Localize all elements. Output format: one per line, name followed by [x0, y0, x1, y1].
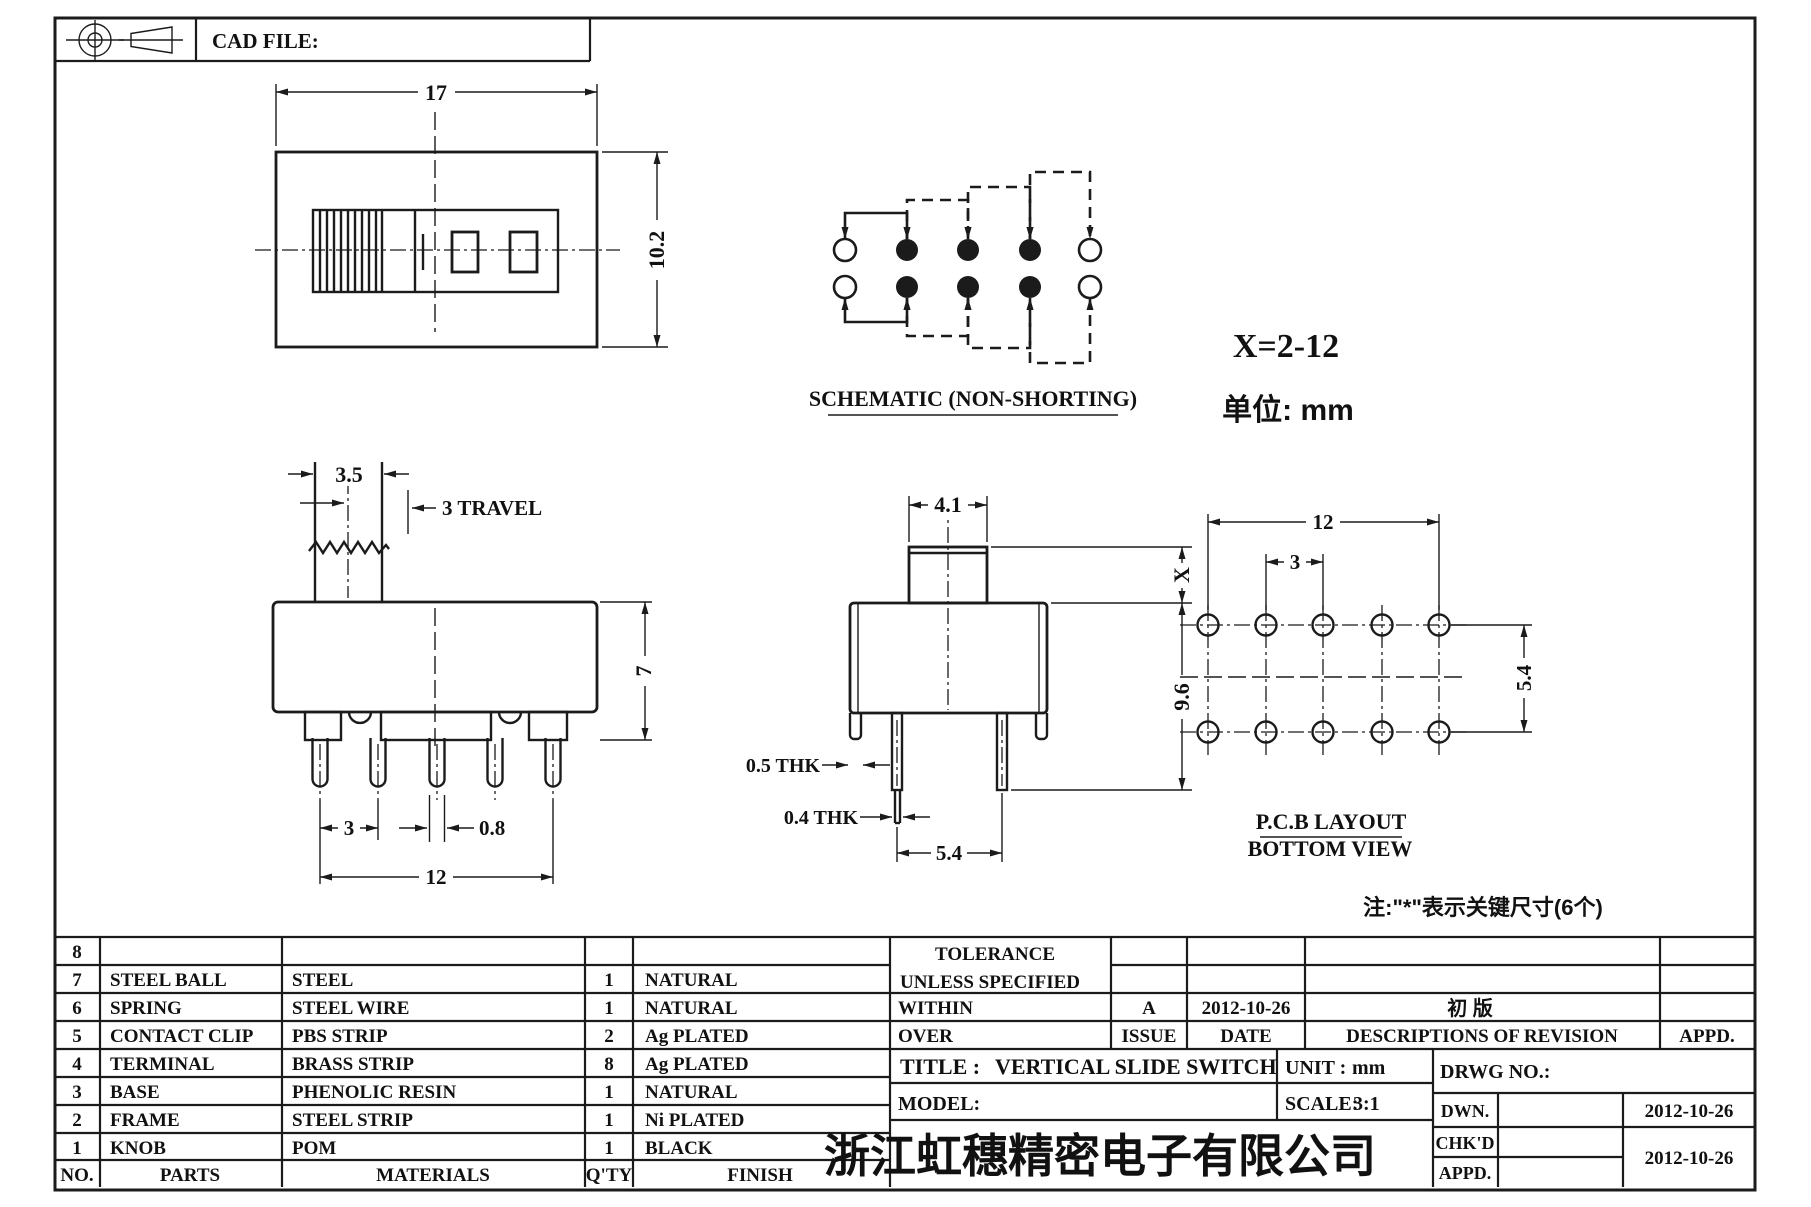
- part-name: STEEL BALL: [110, 970, 227, 991]
- part-qty: 1: [604, 998, 614, 1019]
- part-name: TERMINAL: [110, 1054, 215, 1075]
- part-finish: BLACK: [645, 1138, 713, 1159]
- part-material: BRASS STRIP: [292, 1054, 414, 1075]
- title-value: VERTICAL SLIDE SWITCH: [995, 1054, 1277, 1079]
- schematic-view: SCHEMATIC (NON-SHORTING) X=2-12 单位: mm: [809, 172, 1354, 427]
- part-finish: NATURAL: [645, 970, 738, 991]
- pcb-layout-view: 12 3 5.4 P.C.B LAYOUT BOTTOM VIEW: [1180, 510, 1536, 861]
- part-qty: 1: [604, 1110, 614, 1131]
- scale-value: 3:1: [1353, 1093, 1380, 1115]
- side-body-height-dim: 9.6: [1169, 683, 1194, 711]
- pcb-layout-label: P.C.B LAYOUT: [1256, 809, 1407, 834]
- part-material: STEEL STRIP: [292, 1110, 413, 1131]
- parts-table: 8 7 STEEL BALL STEEL 1 NATURAL 6 SPRING …: [60, 942, 793, 1186]
- tolerance-line1: TOLERANCE: [935, 944, 1055, 965]
- part-qty: 1: [604, 1138, 614, 1159]
- part-no: 1: [72, 1138, 82, 1159]
- part-no: 7: [72, 970, 82, 991]
- part-name: KNOB: [110, 1138, 166, 1159]
- side-row-pitch-dim: 5.4: [936, 841, 963, 865]
- schematic-terminals: [834, 239, 1101, 298]
- within-label: WITHIN: [898, 998, 973, 1019]
- part-finish: NATURAL: [645, 1082, 738, 1103]
- part-material: STEEL: [292, 970, 353, 991]
- dwn-date: 2012-10-26: [1645, 1101, 1734, 1122]
- part-no: 2: [72, 1110, 82, 1131]
- part-qty: 8: [604, 1054, 614, 1075]
- top-view: 17 10.2: [255, 80, 670, 347]
- part-name: BASE: [110, 1082, 160, 1103]
- front-pin-pitch-dim: 3: [344, 816, 355, 840]
- top-view-width-dim: 17: [425, 80, 447, 105]
- unit-value: mm: [1352, 1057, 1386, 1079]
- title-block: TOLERANCE UNLESS SPECIFIED WITHIN OVER A…: [824, 944, 1735, 1183]
- appd-col-label: APPD.: [1679, 1026, 1734, 1047]
- pcb-span-dim: 12: [1313, 510, 1334, 534]
- schematic-label: SCHEMATIC (NON-SHORTING): [809, 386, 1137, 411]
- part-qty: 1: [604, 1082, 614, 1103]
- front-pin-width-dim: 0.8: [479, 816, 505, 840]
- scale-label: SCALE:: [1285, 1093, 1358, 1115]
- drwg-no-label: DRWG NO.:: [1440, 1061, 1550, 1083]
- part-finish: Ag PLATED: [645, 1026, 749, 1047]
- side-pins: [892, 713, 1007, 823]
- part-name: CONTACT CLIP: [110, 1026, 254, 1047]
- part-qty: 2: [604, 1026, 614, 1047]
- drawing-sheet: CAD FILE: 17 10: [0, 0, 1811, 1207]
- part-no: 6: [72, 998, 82, 1019]
- issue-date: 2012-10-26: [1202, 998, 1291, 1019]
- front-pins: [313, 738, 561, 800]
- unit-label: UNIT :: [1285, 1057, 1346, 1079]
- side-pin-thk-dim: 0.4 THK: [784, 807, 859, 829]
- tolerance-line2: UNLESS SPECIFIED: [900, 972, 1080, 993]
- cad-file-label: CAD FILE:: [212, 29, 319, 53]
- over-label: OVER: [898, 1026, 953, 1047]
- chkd-label: CHK'D: [1435, 1133, 1494, 1153]
- dwn-label: DWN.: [1441, 1101, 1490, 1121]
- part-name: SPRING: [110, 998, 182, 1019]
- col-header-materials: MATERIALS: [376, 1165, 490, 1186]
- part-material: STEEL WIRE: [292, 998, 409, 1019]
- part-qty: 1: [604, 970, 614, 991]
- knob-hatch: [320, 210, 382, 292]
- front-knob-width-dim: 3.5: [335, 462, 363, 487]
- title-label: TITLE :: [900, 1054, 980, 1079]
- part-no: 4: [72, 1054, 82, 1075]
- pcb-bottom-view-label: BOTTOM VIEW: [1248, 836, 1413, 861]
- part-name: FRAME: [110, 1110, 180, 1131]
- front-view: 3.5 3 TRAVEL 7 3 0.8 12: [273, 462, 656, 889]
- front-body-height-dim: 7: [631, 666, 656, 677]
- part-finish: Ni PLATED: [645, 1110, 744, 1131]
- target-projection-icon: [66, 20, 124, 60]
- col-header-finish: FINISH: [727, 1165, 793, 1186]
- part-no: 3: [72, 1082, 82, 1103]
- col-header-qty: Q'TY: [586, 1165, 633, 1186]
- appd-label: APPD.: [1439, 1163, 1492, 1183]
- descriptions-label: DESCRIPTIONS OF REVISION: [1346, 1026, 1618, 1047]
- revision-description: 初 版: [1447, 996, 1493, 1020]
- side-frame-legs: [850, 713, 1047, 739]
- part-material: PHENOLIC RESIN: [292, 1082, 456, 1103]
- pcb-pitch-dim: 3: [1290, 550, 1301, 574]
- side-view: 4.1 X 9.6 0.5 THK 0.4 THK 5.4: [746, 492, 1194, 865]
- front-travel-dim: 3 TRAVEL: [442, 496, 542, 520]
- pcb-row-pitch-dim: 5.4: [1512, 664, 1536, 691]
- side-knob-height-dim: X: [1169, 567, 1194, 583]
- side-knob-width-dim: 4.1: [934, 492, 962, 517]
- key-dimension-note: 注:"*"表示关键尺寸(6个): [1363, 895, 1603, 920]
- cone-projection-icon: [119, 27, 183, 53]
- issue-label: ISSUE: [1122, 1026, 1177, 1047]
- issue-value: A: [1142, 998, 1156, 1019]
- model-label: MODEL:: [898, 1093, 980, 1115]
- front-pin-span-dim: 12: [426, 865, 447, 889]
- col-header-parts: PARTS: [160, 1165, 220, 1186]
- side-frame-thk-dim: 0.5 THK: [746, 755, 821, 777]
- top-view-height-dim: 10.2: [644, 231, 669, 270]
- part-material: PBS STRIP: [292, 1026, 388, 1047]
- part-finish: NATURAL: [645, 998, 738, 1019]
- x-range-note: X=2-12: [1233, 328, 1339, 365]
- part-finish: Ag PLATED: [645, 1054, 749, 1075]
- projection-symbols: [66, 20, 183, 60]
- part-material: POM: [292, 1138, 336, 1159]
- company-name: 浙江虹穗精密电子有限公司: [824, 1130, 1376, 1182]
- col-header-no: NO.: [60, 1165, 93, 1186]
- part-no: 8: [72, 942, 82, 963]
- chkd-date: 2012-10-26: [1645, 1148, 1734, 1169]
- drawing-canvas: CAD FILE: 17 10: [0, 0, 1811, 1207]
- part-no: 5: [72, 1026, 82, 1047]
- date-label: DATE: [1220, 1026, 1271, 1047]
- unit-note: 单位: mm: [1222, 393, 1354, 427]
- front-base-tabs: [305, 712, 567, 740]
